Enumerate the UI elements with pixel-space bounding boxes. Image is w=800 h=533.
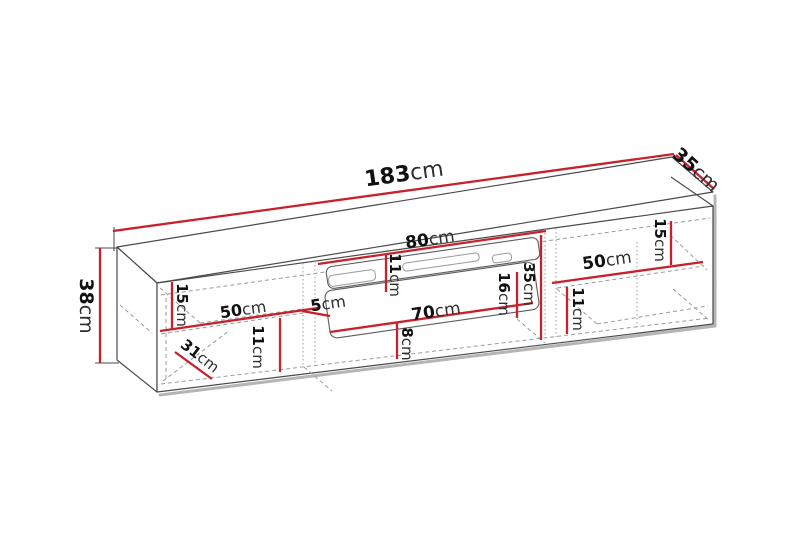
label-fireplace-insert-height: 16cm [495,272,513,316]
diagram-canvas: 183cm 35cm 38cm 15cm 50cm 5cm 11cm 31cm … [0,0,800,533]
label-right-top-shelf-height: 15cm [651,218,669,262]
label-middle-inner-height: 35cm [520,262,538,306]
label-left-lower-shelf-height: 11cm [249,325,267,369]
label-left-top-shelf-height: 15cm [173,283,191,327]
dimension-diagram: 183cm 35cm 38cm 15cm 50cm 5cm 11cm 31cm … [0,0,800,533]
label-overall-height: 38cm [75,278,97,333]
label-fireplace-top-height: 11cm [386,253,404,297]
label-fireplace-bottom-height: 8cm [398,327,416,360]
label-right-lower-shelf-height: 11cm [569,287,587,331]
